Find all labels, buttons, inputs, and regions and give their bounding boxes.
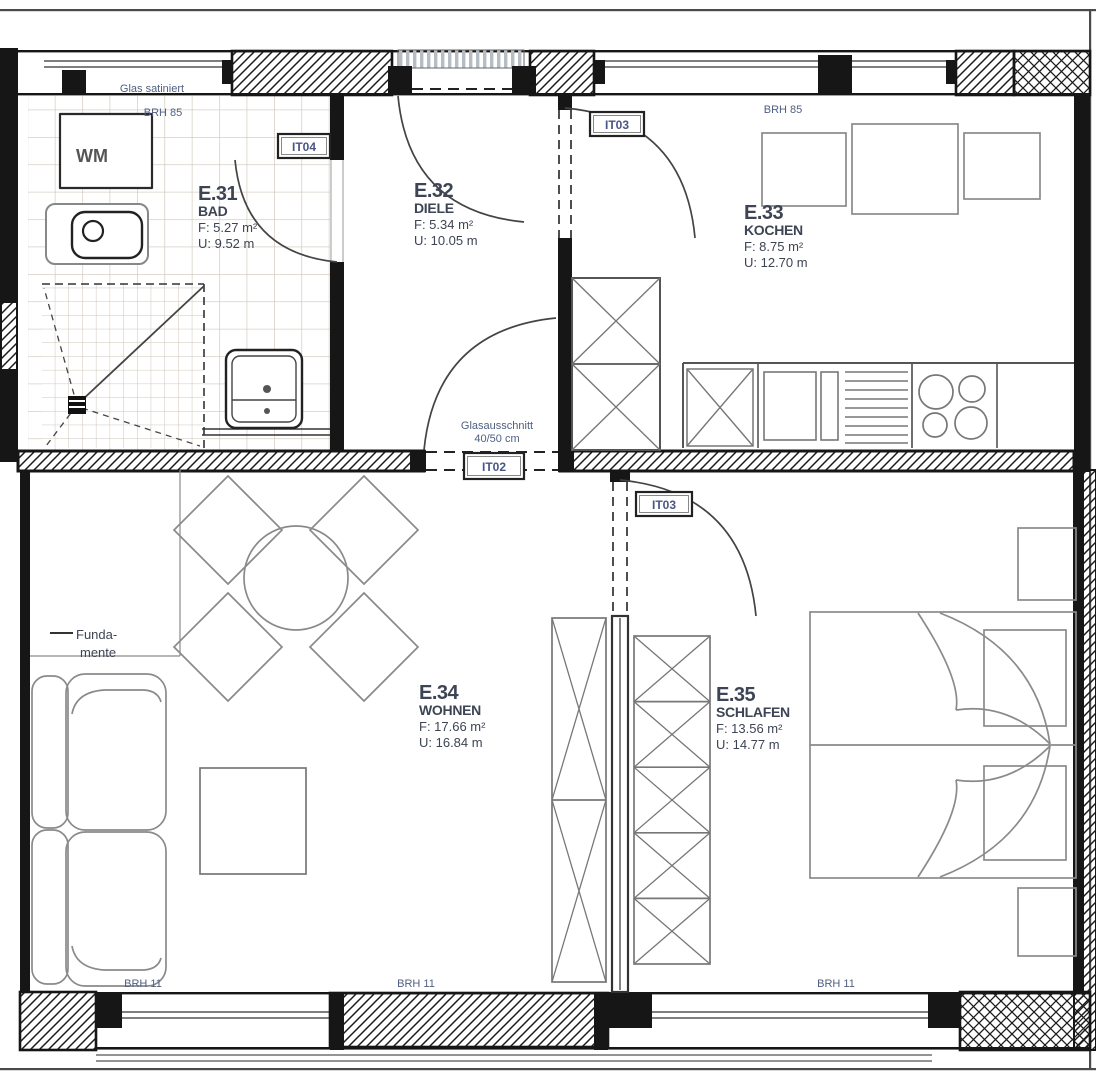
kitchen-counter <box>683 363 1074 448</box>
sofa <box>32 674 166 986</box>
glas-satiniert-label: Glas satiniert <box>120 83 184 95</box>
door-tag-it03-bedroom-label: IT03 <box>652 498 676 512</box>
dining-set <box>174 476 418 701</box>
room-perimeter: U: 9.52 m <box>198 236 254 251</box>
fundamente-label-line1: Funda- <box>76 627 117 642</box>
dish-drainer <box>845 372 908 443</box>
room-area: F: 8.75 m² <box>744 239 804 254</box>
wall-pier-solid <box>606 992 652 1028</box>
living-room-furniture <box>32 476 606 986</box>
wall-pier-hatched <box>956 51 1014 95</box>
wall-pier-hatched <box>530 51 594 95</box>
bedroom-furniture <box>634 528 1076 964</box>
room-perimeter: U: 10.05 m <box>414 233 478 248</box>
fundamente-label-line2: mente <box>80 645 116 660</box>
room-area: F: 5.34 m² <box>414 217 474 232</box>
door-tag-it02: IT02 <box>464 453 524 479</box>
door-tag-it04: IT04 <box>278 134 330 158</box>
room-label-schlafen: E.35 SCHLAFEN F: 13.56 m² U: 14.77 m <box>716 684 790 752</box>
exterior-wall-bottom <box>20 992 1090 1061</box>
room-perimeter: U: 16.84 m <box>419 735 483 750</box>
exterior-wall-left <box>0 48 30 992</box>
room-label-wohnen: E.34 WOHNEN F: 17.66 m² U: 16.84 m <box>419 682 486 750</box>
room-name: KOCHEN <box>744 222 803 238</box>
room-name: BAD <box>198 203 228 219</box>
kitchen-table-group <box>762 124 1040 214</box>
brh11-right-label: BRH 11 <box>817 978 855 990</box>
wall-pier-hatched <box>330 993 608 1047</box>
room-label-kochen: E.33 KOCHEN F: 8.75 m² U: 12.70 m <box>744 202 808 270</box>
floorplan-drawing: IT04 IT03 IT02 IT03 E.31 BAD F: 5.27 m² … <box>0 0 1096 1080</box>
shower-drain <box>68 396 86 414</box>
nightstand <box>1018 888 1076 956</box>
entrance-grate <box>398 50 524 68</box>
wall-corner-crosshatch <box>960 992 1090 1050</box>
kitchen-sink <box>764 372 838 440</box>
exterior-wall-right <box>1074 94 1096 1050</box>
room-perimeter: U: 14.77 m <box>716 737 780 752</box>
room-name: DIELE <box>414 200 454 216</box>
kitchen-fixtures <box>572 124 1074 450</box>
wall-pier-solid <box>818 55 852 94</box>
chair <box>310 593 418 701</box>
room-label-diele: E.32 DIELE F: 5.34 m² U: 10.05 m <box>414 180 478 248</box>
toilet <box>46 204 148 264</box>
brh11-left-label: BRH 11 <box>124 978 162 990</box>
wardrobe-left <box>552 618 606 982</box>
tall-cabinet <box>572 278 660 450</box>
brh85-left-label: BRH 85 <box>144 107 183 119</box>
chair <box>174 476 282 584</box>
room-perimeter: U: 12.70 m <box>744 255 808 270</box>
wall-diele-kochen <box>558 96 695 452</box>
door-tag-it03-kitchen: IT03 <box>590 112 644 136</box>
door-tag-it02-label: IT02 <box>482 460 506 474</box>
door-tag-it03-kitchen-label: IT03 <box>605 118 629 132</box>
floorplan-page: IT04 IT03 IT02 IT03 E.31 BAD F: 5.27 m² … <box>0 0 1096 1080</box>
room-tag: E.32 <box>414 180 454 202</box>
room-area: F: 5.27 m² <box>198 220 258 235</box>
room-name: WOHNEN <box>419 702 481 718</box>
wardrobe-right <box>634 636 710 964</box>
wall-pier-hatched <box>232 51 392 95</box>
brh11-mid-label: BRH 11 <box>397 978 435 990</box>
counter-cabinet <box>687 369 753 446</box>
coffee-table <box>200 768 306 874</box>
door-tag-it04-label: IT04 <box>292 140 316 154</box>
room-tag: E.34 <box>419 682 460 704</box>
room-tag: E.33 <box>744 202 784 224</box>
wm-label: WM <box>76 146 108 166</box>
stove <box>912 363 987 448</box>
window-bottom-right <box>652 1012 928 1018</box>
room-tag: E.31 <box>198 183 238 205</box>
entrance-doorway <box>388 50 536 222</box>
room-name: SCHLAFEN <box>716 704 790 720</box>
glasausschnitt-label-line1: Glasausschnitt <box>461 420 533 432</box>
wall-corner-crosshatch <box>1014 51 1090 95</box>
chair <box>310 476 418 584</box>
nightstand <box>1018 528 1076 600</box>
room-area: F: 17.66 m² <box>419 719 486 734</box>
glasausschnitt-label-line2: 40/50 cm <box>474 433 519 445</box>
bed <box>810 612 1076 878</box>
room-area: F: 13.56 m² <box>716 721 783 736</box>
window-bottom-left <box>122 1012 330 1018</box>
room-tag: E.35 <box>716 684 756 706</box>
window-top-kitchen-left <box>594 60 818 84</box>
brh85-right-label: BRH 85 <box>764 104 803 116</box>
chair <box>174 593 282 701</box>
dining-table <box>244 526 348 630</box>
window-top-kitchen-right <box>852 60 957 84</box>
door-tag-it03-bedroom: IT03 <box>636 492 692 516</box>
